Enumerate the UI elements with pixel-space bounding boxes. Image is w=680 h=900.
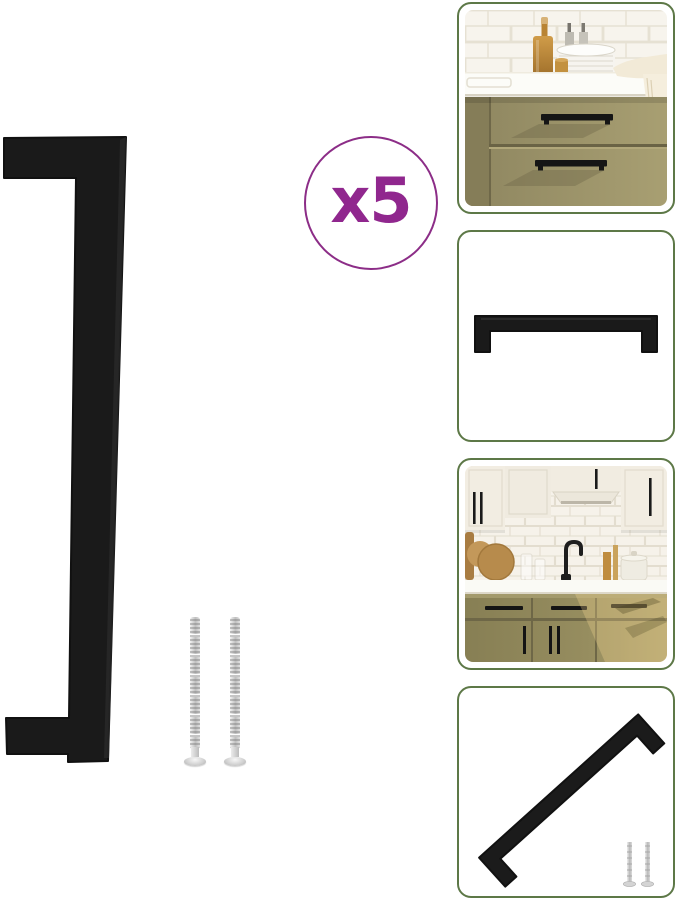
- cabinet-handle: [595, 469, 598, 489]
- pack-quantity-label: x5: [330, 170, 411, 232]
- thumbnail-photo: [465, 238, 667, 434]
- lower-cabinets: [465, 594, 667, 662]
- screw-illustration: [223, 617, 247, 767]
- drawer-handle: [485, 606, 523, 610]
- screw-head: [184, 757, 206, 766]
- cabinet-front: [465, 97, 667, 206]
- screw-neck: [191, 747, 199, 757]
- kitchen-overview-scene: [465, 466, 667, 662]
- main-product-image[interactable]: x5: [0, 0, 450, 900]
- thumbnail-photo: [465, 466, 667, 662]
- handle-diagonal-scene: [465, 694, 667, 890]
- thumbnail-handle-diagonal[interactable]: [457, 686, 675, 898]
- thumbnail-photo: [465, 10, 667, 206]
- cabinet-handle: [473, 492, 476, 524]
- door-handle: [523, 626, 526, 654]
- black-handle-photo: [0, 130, 140, 780]
- thumbnail-photo: [465, 694, 667, 890]
- product-image-viewer: x5: [0, 0, 680, 900]
- kitchen-closeup-scene: [465, 10, 667, 206]
- thumbnail-handle-front-view[interactable]: [457, 230, 675, 442]
- thumbnail-kitchen-drawers-closeup[interactable]: [457, 2, 675, 214]
- thumbnail-kitchen-overview[interactable]: [457, 458, 675, 670]
- handle-sheen: [481, 318, 651, 320]
- screw-shaft: [190, 617, 200, 749]
- screw-head: [224, 757, 246, 766]
- door-handle: [557, 626, 560, 654]
- screw-illustration: [183, 617, 207, 767]
- handle-front-scene: [465, 238, 667, 434]
- cabinet-handle: [649, 478, 652, 516]
- white-background: [465, 238, 667, 434]
- cabinet-handle: [480, 492, 483, 524]
- door-handle: [549, 626, 552, 654]
- pack-quantity-badge: x5: [304, 136, 438, 270]
- range-hood: [553, 492, 619, 504]
- countertop: [465, 580, 667, 594]
- screw-shaft: [230, 617, 240, 749]
- screw-neck: [231, 747, 239, 757]
- counter-front-lip: [465, 94, 667, 97]
